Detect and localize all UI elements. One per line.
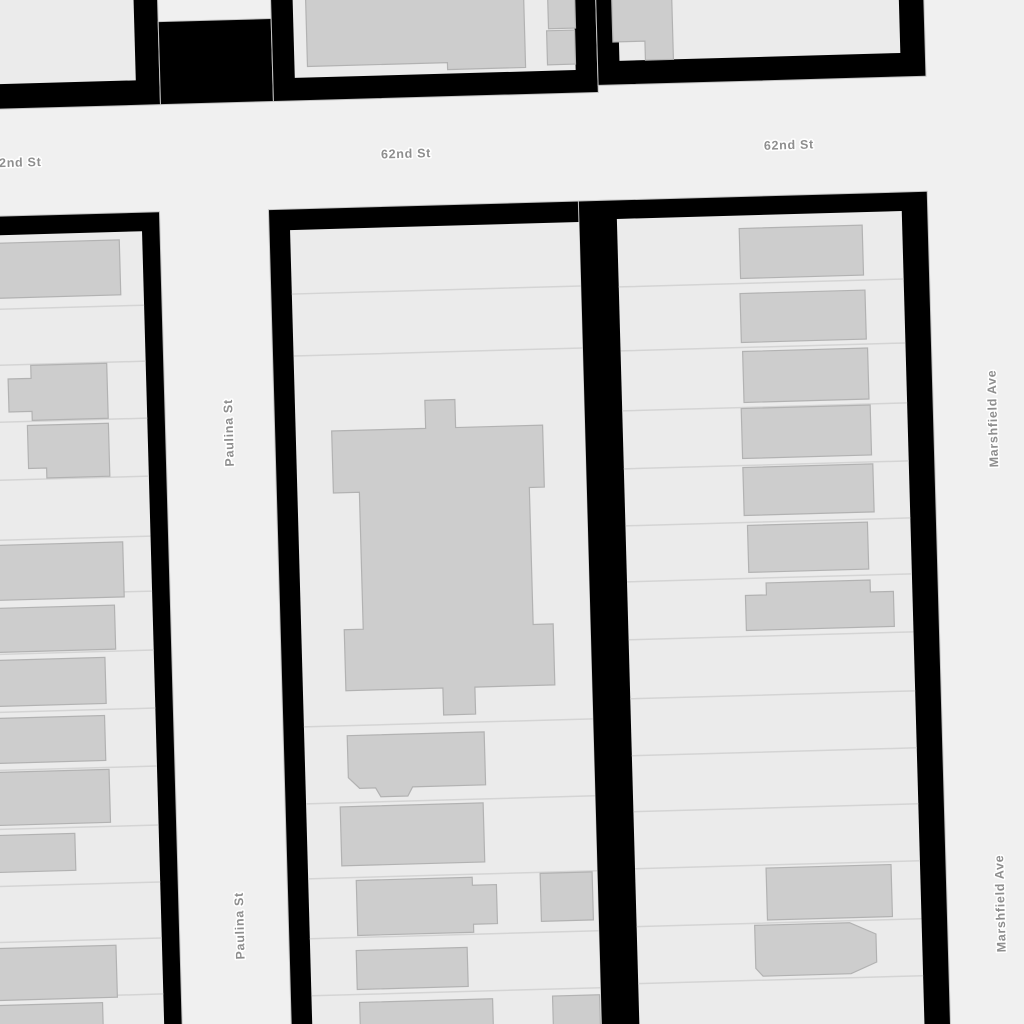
building-footprint [356,947,468,989]
street-label-62nd-st-right: 62nd St [764,137,815,152]
map-canvas[interactable]: 2nd St 62nd St 62nd St Paulina St Paulin… [0,0,1024,1024]
street-label-62nd-st-left: 2nd St [0,155,42,170]
building-footprint [0,657,106,707]
building-footprint [0,1003,104,1024]
building-footprint [0,542,124,602]
building-footprint [0,715,106,764]
map-viewport[interactable]: 2nd St 62nd St 62nd St Paulina St Paulin… [0,0,1024,1024]
building-footprint [739,225,863,278]
block-north-paulina-end [158,19,273,105]
building-footprint [755,922,877,976]
building-footprint [0,605,116,654]
building-footprint [547,30,576,65]
building-footprint [0,945,117,1002]
building-footprint [743,348,869,402]
building-footprint [0,833,76,874]
building-footprint [0,769,111,827]
building-footprint [546,0,576,29]
building-footprint [0,240,121,300]
building-footprint-large [331,397,556,718]
building-footprint [741,405,871,459]
street-label-marshfield-ave-lower: Marshfield Ave [992,854,1009,952]
street-label-marshfield-ave-upper: Marshfield Ave [985,369,1002,467]
building-footprint [766,865,892,920]
building-footprint [360,999,495,1024]
building-footprint [553,995,602,1024]
parcels-northwest [0,0,136,86]
building-footprint [304,0,525,74]
building-footprint [340,803,485,866]
building-footprint [747,522,868,572]
building-footprint [540,872,593,921]
street-label-paulina-st-lower: Paulina St [232,892,248,960]
street-label-62nd-st-center: 62nd St [381,146,432,161]
street-label-paulina-st-upper: Paulina St [221,399,237,467]
building-footprint [743,464,874,516]
building-footprint [740,290,866,342]
